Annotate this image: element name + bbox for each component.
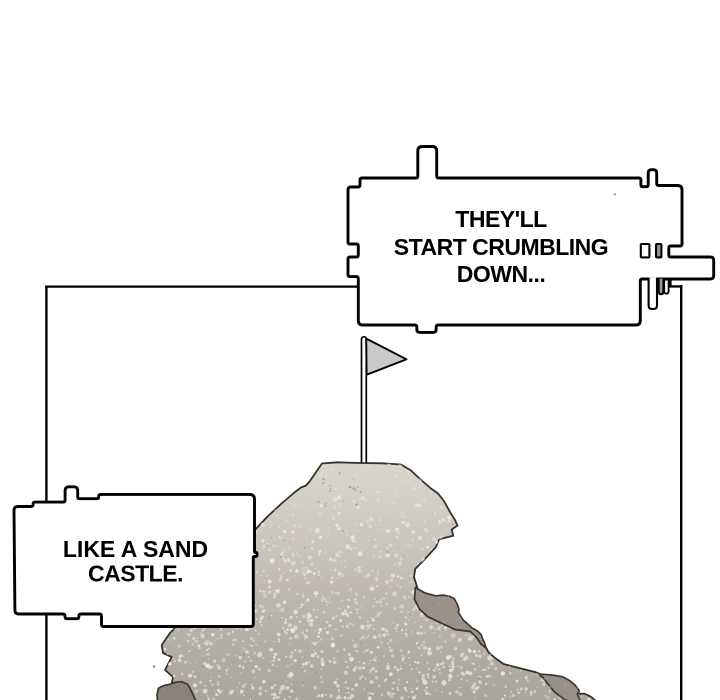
- svg-text:CASTLE.: CASTLE.: [88, 561, 183, 587]
- svg-text:LIKE A SAND: LIKE A SAND: [63, 536, 208, 562]
- svg-text:START CRUMBLING: START CRUMBLING: [394, 234, 608, 260]
- svg-text:THEY'LL: THEY'LL: [455, 206, 547, 232]
- svg-text:DOWN...: DOWN...: [457, 261, 546, 287]
